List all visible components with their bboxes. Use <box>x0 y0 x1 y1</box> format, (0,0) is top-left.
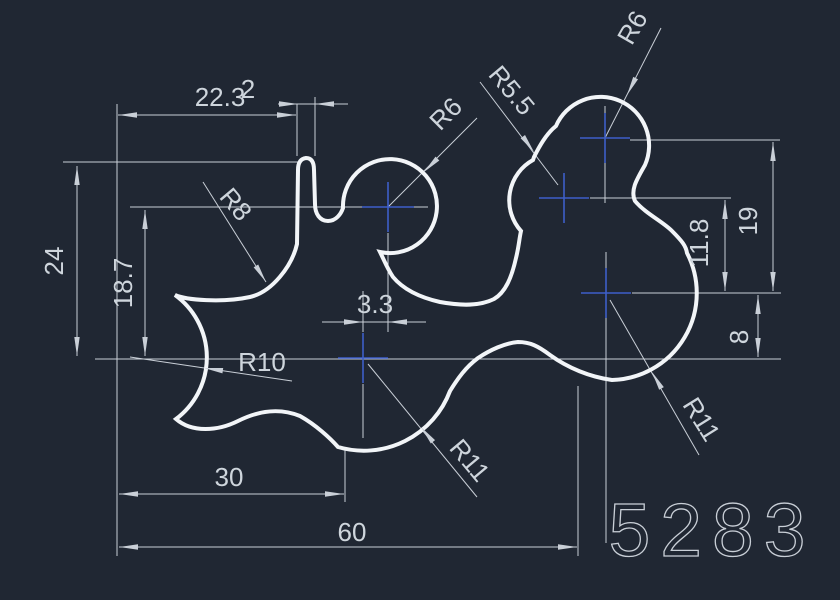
radius-label-r11-bottom: R11 <box>444 433 496 487</box>
arrowhead <box>344 319 363 324</box>
dim-left-height: 24 <box>39 247 69 276</box>
arrowhead <box>279 101 298 106</box>
radius-label-r6-right: R6 <box>611 6 654 50</box>
dim-bottom-width: 30 <box>215 462 244 492</box>
dim-rib-width: 2 <box>241 74 255 104</box>
dim-total-width: 60 <box>338 517 367 547</box>
dim-right-height: 19 <box>733 207 763 236</box>
arrowhead <box>625 77 638 96</box>
arrowhead <box>254 264 269 283</box>
dim-left-inner-height: 18.7 <box>108 258 138 309</box>
cad-drawing-canvas[interactable]: 22.3 2 24 18.7 3.3 30 60 11.8 19 8 R8 R6… <box>0 0 840 600</box>
cad-drawing: 22.3 2 24 18.7 3.3 30 60 11.8 19 8 R8 R6… <box>0 0 840 600</box>
dim-center-offset: 3.3 <box>357 289 393 319</box>
center-mark <box>539 173 589 223</box>
radius-label-r11-right: R11 <box>677 392 727 447</box>
radius-label-r5-5: R5.5 <box>483 60 541 121</box>
drawing-number: 5283 <box>609 488 816 572</box>
arrowheads <box>204 77 664 444</box>
dim-top-width: 22.3 <box>195 82 246 112</box>
center-marks <box>338 113 631 383</box>
arrowhead <box>315 101 334 106</box>
arrowhead <box>422 157 439 174</box>
radius-label-r6-left: R6 <box>423 91 468 136</box>
center-mark <box>580 113 630 163</box>
dim-right-lower-height: 8 <box>724 330 754 344</box>
center-mark <box>338 333 388 383</box>
arrowhead <box>521 135 537 154</box>
center-mark <box>581 268 631 318</box>
arrowhead <box>388 319 407 324</box>
radius-label-r10: R10 <box>238 347 286 377</box>
dimension-texts: 22.3 2 24 18.7 3.3 30 60 11.8 19 8 R8 R6… <box>39 6 763 547</box>
radius-label-r8: R8 <box>214 182 258 227</box>
dim-right-inner-height: 11.8 <box>684 219 714 268</box>
part-outline <box>175 97 697 451</box>
